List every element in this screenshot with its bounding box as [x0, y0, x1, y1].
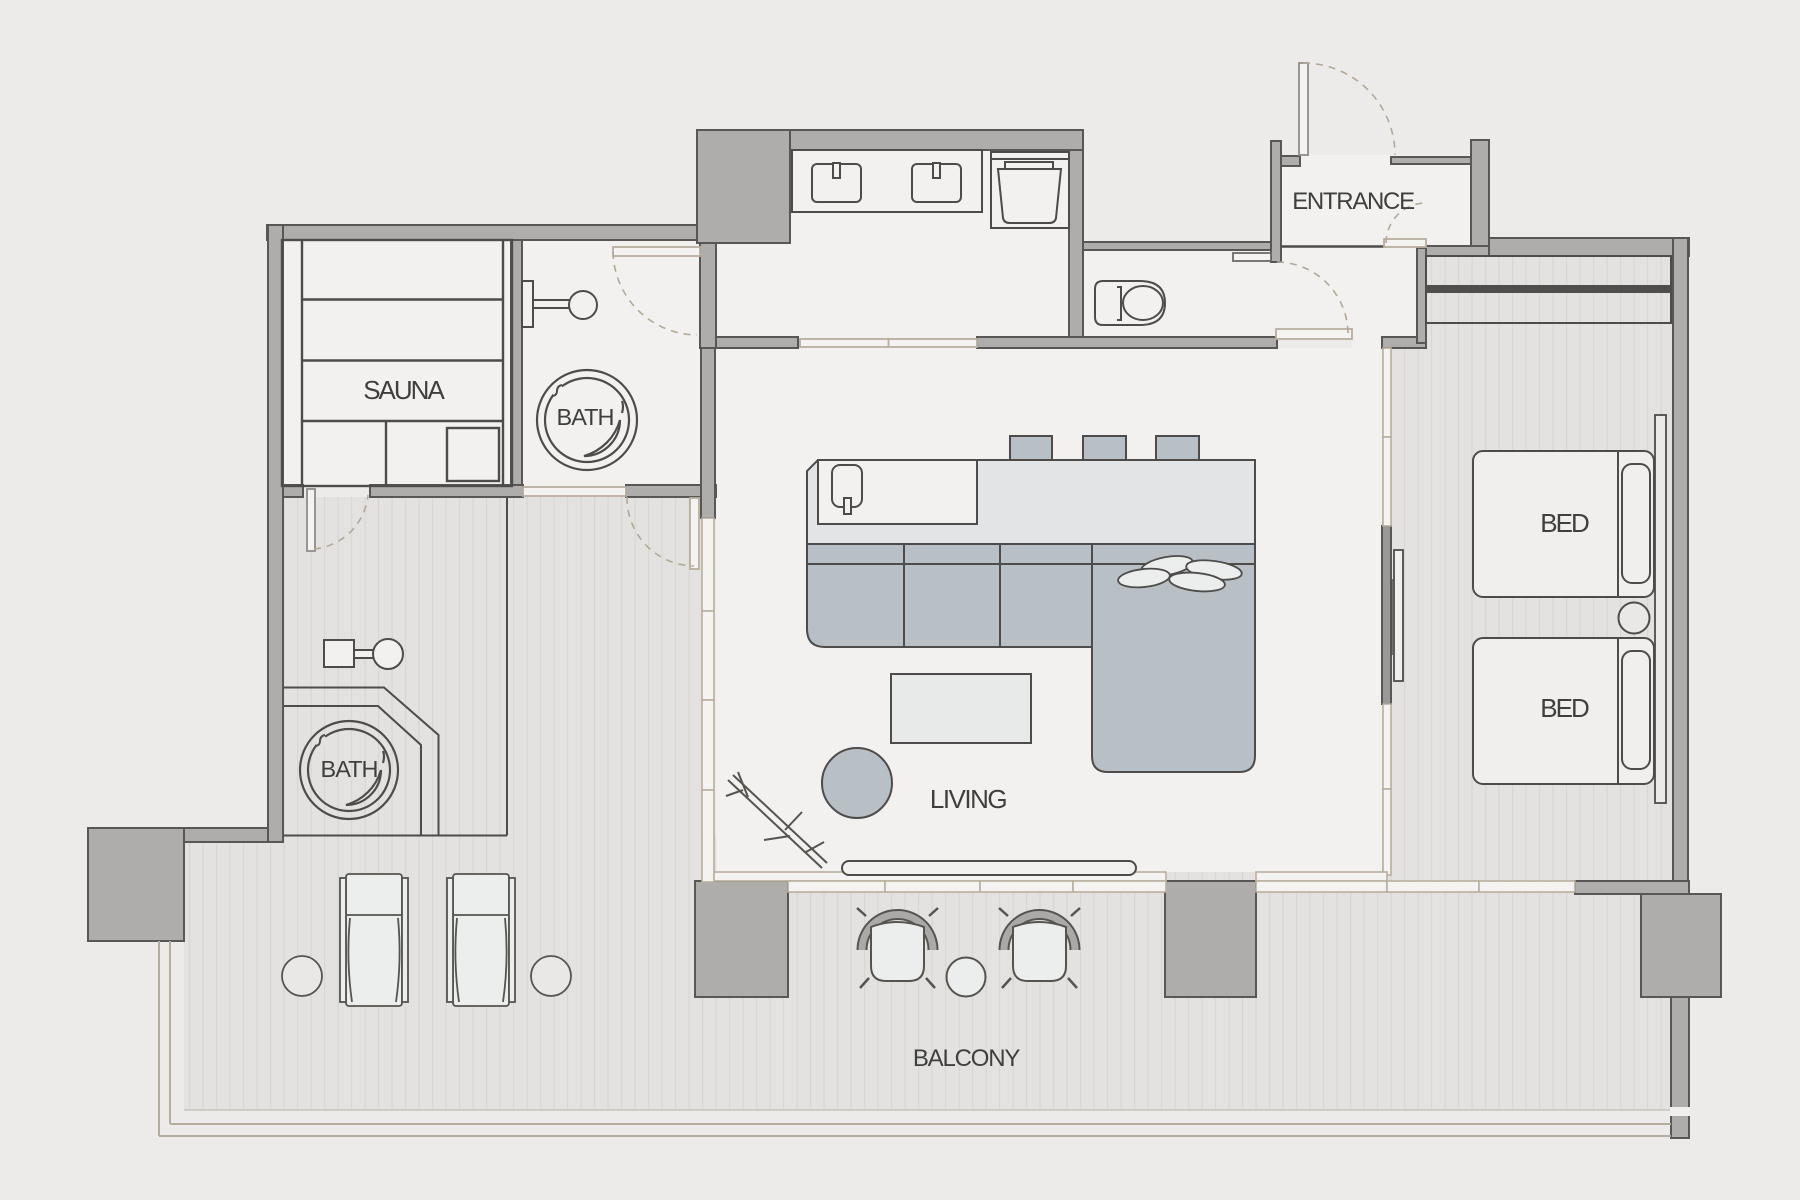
svg-text:BALCONY: BALCONY — [913, 1045, 1020, 1072]
svg-text:BED: BED — [1540, 508, 1589, 538]
svg-text:SAUNA: SAUNA — [363, 375, 445, 405]
svg-text:LIVING: LIVING — [930, 784, 1007, 814]
svg-text:BATH: BATH — [557, 404, 614, 430]
svg-text:BATH: BATH — [321, 756, 378, 782]
svg-text:BED: BED — [1540, 693, 1589, 723]
svg-text:ENTRANCE: ENTRANCE — [1292, 188, 1414, 215]
